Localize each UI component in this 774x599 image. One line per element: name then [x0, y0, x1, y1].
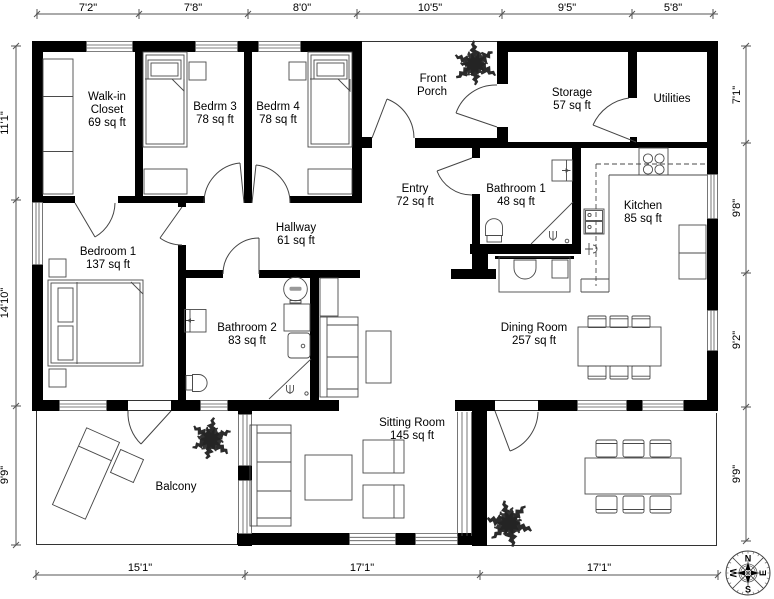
svg-text:11'1": 11'1" [0, 111, 11, 135]
svg-text:14'10": 14'10" [0, 288, 11, 319]
svg-text:Hallway: Hallway [276, 222, 317, 234]
svg-text:Bedroom 1: Bedroom 1 [80, 246, 136, 258]
svg-text:78 sq ft: 78 sq ft [259, 114, 298, 126]
svg-text:Dining Room: Dining Room [501, 322, 567, 334]
svg-text:Bathroom 1: Bathroom 1 [486, 183, 545, 195]
svg-text:61 sq ft: 61 sq ft [277, 235, 316, 247]
svg-text:7'2": 7'2" [79, 2, 97, 14]
svg-text:9'8": 9'8" [731, 199, 743, 217]
svg-text:N: N [745, 554, 752, 564]
svg-text:S: S [745, 585, 751, 595]
svg-text:W: W [728, 569, 738, 578]
svg-text:137 sq ft: 137 sq ft [86, 259, 131, 271]
svg-text:E: E [758, 570, 768, 576]
svg-text:9'9": 9'9" [731, 465, 743, 483]
svg-text:72 sq ft: 72 sq ft [396, 196, 435, 208]
svg-text:Entry: Entry [402, 183, 429, 195]
svg-text:Balcony: Balcony [156, 481, 197, 493]
svg-text:Walk-in: Walk-in [88, 91, 126, 103]
svg-text:17'1": 17'1" [350, 562, 374, 574]
svg-text:Utilities: Utilities [653, 93, 690, 105]
svg-text:9'2": 9'2" [731, 331, 743, 349]
svg-text:69 sq ft: 69 sq ft [88, 117, 127, 129]
svg-text:7'8": 7'8" [184, 2, 202, 14]
svg-text:10'5": 10'5" [418, 2, 442, 14]
svg-text:8'0": 8'0" [293, 2, 311, 14]
svg-text:48 sq ft: 48 sq ft [497, 196, 536, 208]
svg-text:57 sq ft: 57 sq ft [553, 100, 592, 112]
svg-text:Storage: Storage [552, 87, 592, 99]
svg-text:78 sq ft: 78 sq ft [196, 114, 235, 126]
svg-text:Porch: Porch [417, 86, 447, 98]
svg-text:Sitting Room: Sitting Room [379, 417, 445, 429]
svg-text:257 sq ft: 257 sq ft [512, 335, 557, 347]
svg-text:Bathroom 2: Bathroom 2 [217, 322, 276, 334]
svg-text:7'1": 7'1" [731, 86, 743, 104]
svg-text:5'8": 5'8" [664, 2, 682, 14]
svg-text:Bedrm 4: Bedrm 4 [256, 101, 300, 113]
svg-text:17'1": 17'1" [587, 562, 611, 574]
svg-text:Kitchen: Kitchen [624, 200, 662, 212]
svg-text:Bedrm 3: Bedrm 3 [193, 101, 236, 113]
svg-text:83 sq ft: 83 sq ft [228, 335, 267, 347]
svg-text:Front: Front [420, 73, 448, 85]
svg-text:Closet: Closet [91, 104, 124, 116]
svg-text:145 sq ft: 145 sq ft [390, 430, 435, 442]
svg-text:15'1": 15'1" [128, 562, 152, 574]
svg-text:9'5": 9'5" [558, 2, 576, 14]
svg-text:9'9": 9'9" [0, 466, 11, 484]
svg-text:85 sq ft: 85 sq ft [624, 213, 663, 225]
